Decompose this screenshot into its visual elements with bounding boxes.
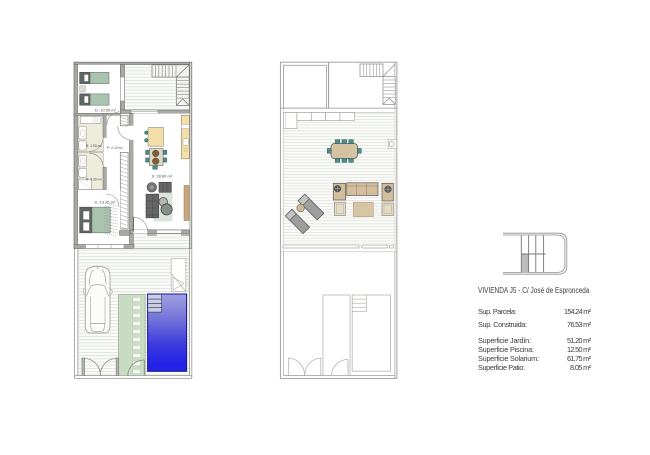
svg-text:Superficie Jardín:: Superficie Jardín: <box>478 336 531 345</box>
svg-text:Superficie Piscina:: Superficie Piscina: <box>478 345 534 354</box>
svg-text:B: 3.30 m²: B: 3.30 m² <box>86 178 103 182</box>
svg-text:Superficie Patio:: Superficie Patio: <box>478 363 525 372</box>
svg-text:61.75 m²: 61.75 m² <box>567 354 592 363</box>
svg-text:D. 10.50 m²: D. 10.50 m² <box>95 108 117 113</box>
svg-text:Superficie Solarium:: Superficie Solarium: <box>478 354 539 363</box>
svg-text:12.50 m²: 12.50 m² <box>567 345 592 354</box>
svg-text:B: 1.90 m²: B: 1.90 m² <box>86 144 103 148</box>
svg-text:P: 2.10 m²: P: 2.10 m² <box>107 146 124 150</box>
svg-text:S: 28.60 m²: S: 28.60 m² <box>152 174 173 179</box>
svg-text:154.24 m²: 154.24 m² <box>564 307 592 316</box>
svg-text:76.53 m²: 76.53 m² <box>567 320 592 329</box>
svg-text:Sup. Parcela:: Sup. Parcela: <box>478 307 517 316</box>
svg-text:51.20 m²: 51.20 m² <box>567 336 592 345</box>
svg-text:8.05 m²: 8.05 m² <box>570 363 592 372</box>
svg-text:Sup. Construida:: Sup. Construida: <box>478 320 527 329</box>
svg-text:VIVIENDA J5 - C/ José de Espro: VIVIENDA J5 - C/ José de Espronceda <box>478 286 590 295</box>
svg-text:D. 13.75 m²: D. 13.75 m² <box>95 200 117 205</box>
